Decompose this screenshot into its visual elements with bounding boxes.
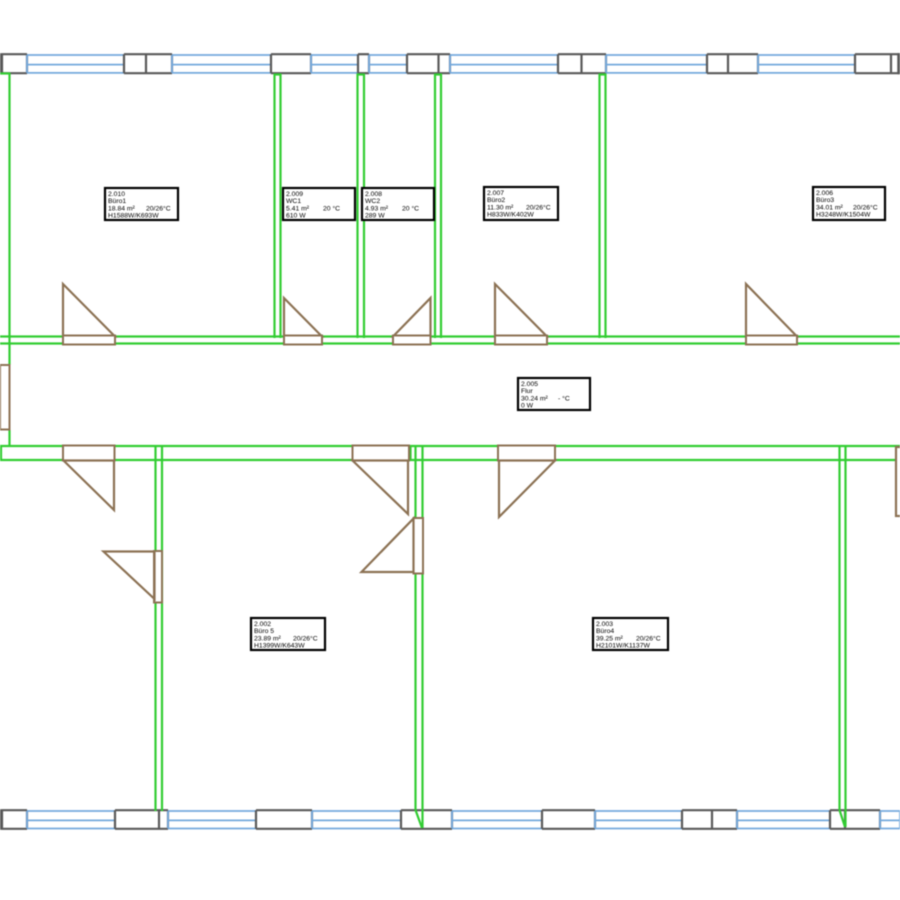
- svg-text:WC2: WC2: [365, 198, 380, 205]
- svg-text:39.25 m²: 39.25 m²: [596, 635, 624, 642]
- svg-text:WC1: WC1: [286, 198, 301, 205]
- svg-text:H833W/K402W: H833W/K402W: [487, 212, 534, 219]
- svg-text:H3248W/K1504W: H3248W/K1504W: [816, 212, 871, 219]
- svg-text:2.008: 2.008: [365, 191, 382, 198]
- svg-text:20/26°C: 20/26°C: [293, 634, 318, 642]
- svg-text:20 °C: 20 °C: [402, 204, 419, 212]
- svg-text:34.01 m²: 34.01 m²: [816, 204, 844, 211]
- svg-text:H1399W/K643W: H1399W/K643W: [254, 643, 305, 650]
- svg-text:2.002: 2.002: [254, 621, 271, 628]
- svg-text:5.41 m²: 5.41 m²: [286, 205, 310, 212]
- svg-text:20/26°C: 20/26°C: [146, 204, 171, 212]
- svg-text:20/26°C: 20/26°C: [636, 634, 661, 642]
- svg-text:Büro 5: Büro 5: [254, 628, 274, 635]
- svg-text:20/26°C: 20/26°C: [526, 203, 551, 211]
- svg-text:0 W: 0 W: [521, 403, 534, 410]
- svg-text:2.009: 2.009: [286, 191, 303, 198]
- svg-text:610 W: 610 W: [286, 213, 306, 220]
- svg-text:Büro1: Büro1: [108, 198, 126, 205]
- svg-text:30.24 m²: 30.24 m²: [521, 395, 549, 402]
- svg-text:H2101W/K1137W: H2101W/K1137W: [596, 643, 650, 650]
- svg-text:Büro3: Büro3: [816, 197, 834, 204]
- svg-text:18.84 m²: 18.84 m²: [108, 205, 136, 212]
- svg-text:289 W: 289 W: [365, 213, 385, 220]
- svg-text:11.30 m²: 11.30 m²: [487, 204, 514, 211]
- svg-text:23.89 m²: 23.89 m²: [254, 635, 282, 642]
- svg-text:4.93 m²: 4.93 m²: [365, 205, 389, 212]
- svg-text:Büro4: Büro4: [596, 628, 614, 635]
- svg-text:2.003: 2.003: [596, 621, 613, 628]
- svg-text:2.006: 2.006: [816, 190, 833, 197]
- svg-text:2.010: 2.010: [108, 191, 125, 198]
- svg-text:2.007: 2.007: [487, 190, 504, 197]
- svg-text:20 °C: 20 °C: [323, 204, 340, 212]
- svg-text:- °C: - °C: [558, 394, 570, 402]
- svg-text:H1588W/K693W: H1588W/K693W: [108, 213, 159, 220]
- svg-text:Flur: Flur: [521, 388, 533, 395]
- svg-text:Büro2: Büro2: [487, 197, 505, 204]
- svg-text:20/26°C: 20/26°C: [853, 203, 878, 211]
- svg-text:2.005: 2.005: [521, 381, 538, 388]
